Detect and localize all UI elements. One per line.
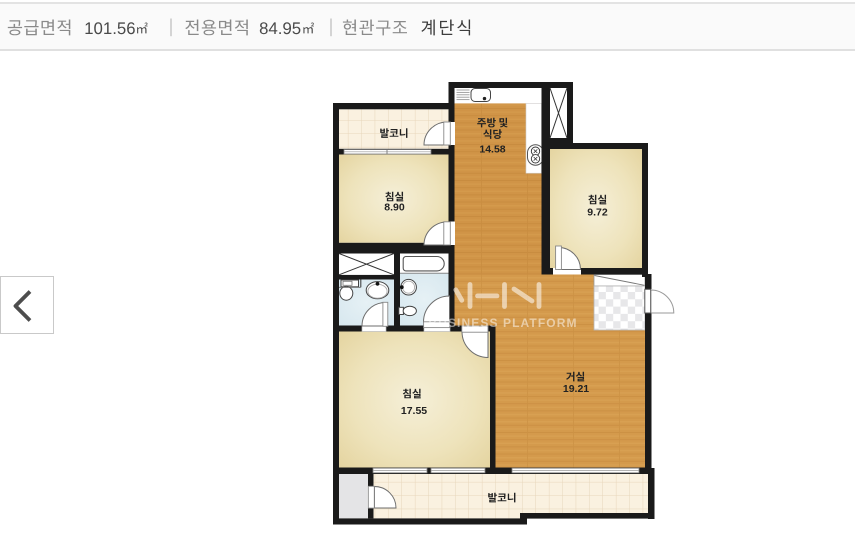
svg-text:9.72: 9.72: [587, 207, 608, 219]
svg-text:17.55: 17.55: [401, 405, 427, 417]
svg-text:19.21: 19.21: [563, 383, 589, 395]
svg-text:14.58: 14.58: [479, 144, 505, 156]
svg-text:8.90: 8.90: [384, 202, 405, 214]
svg-text:BUSINESS PLATFORM: BUSINESS PLATFORM: [428, 316, 577, 330]
